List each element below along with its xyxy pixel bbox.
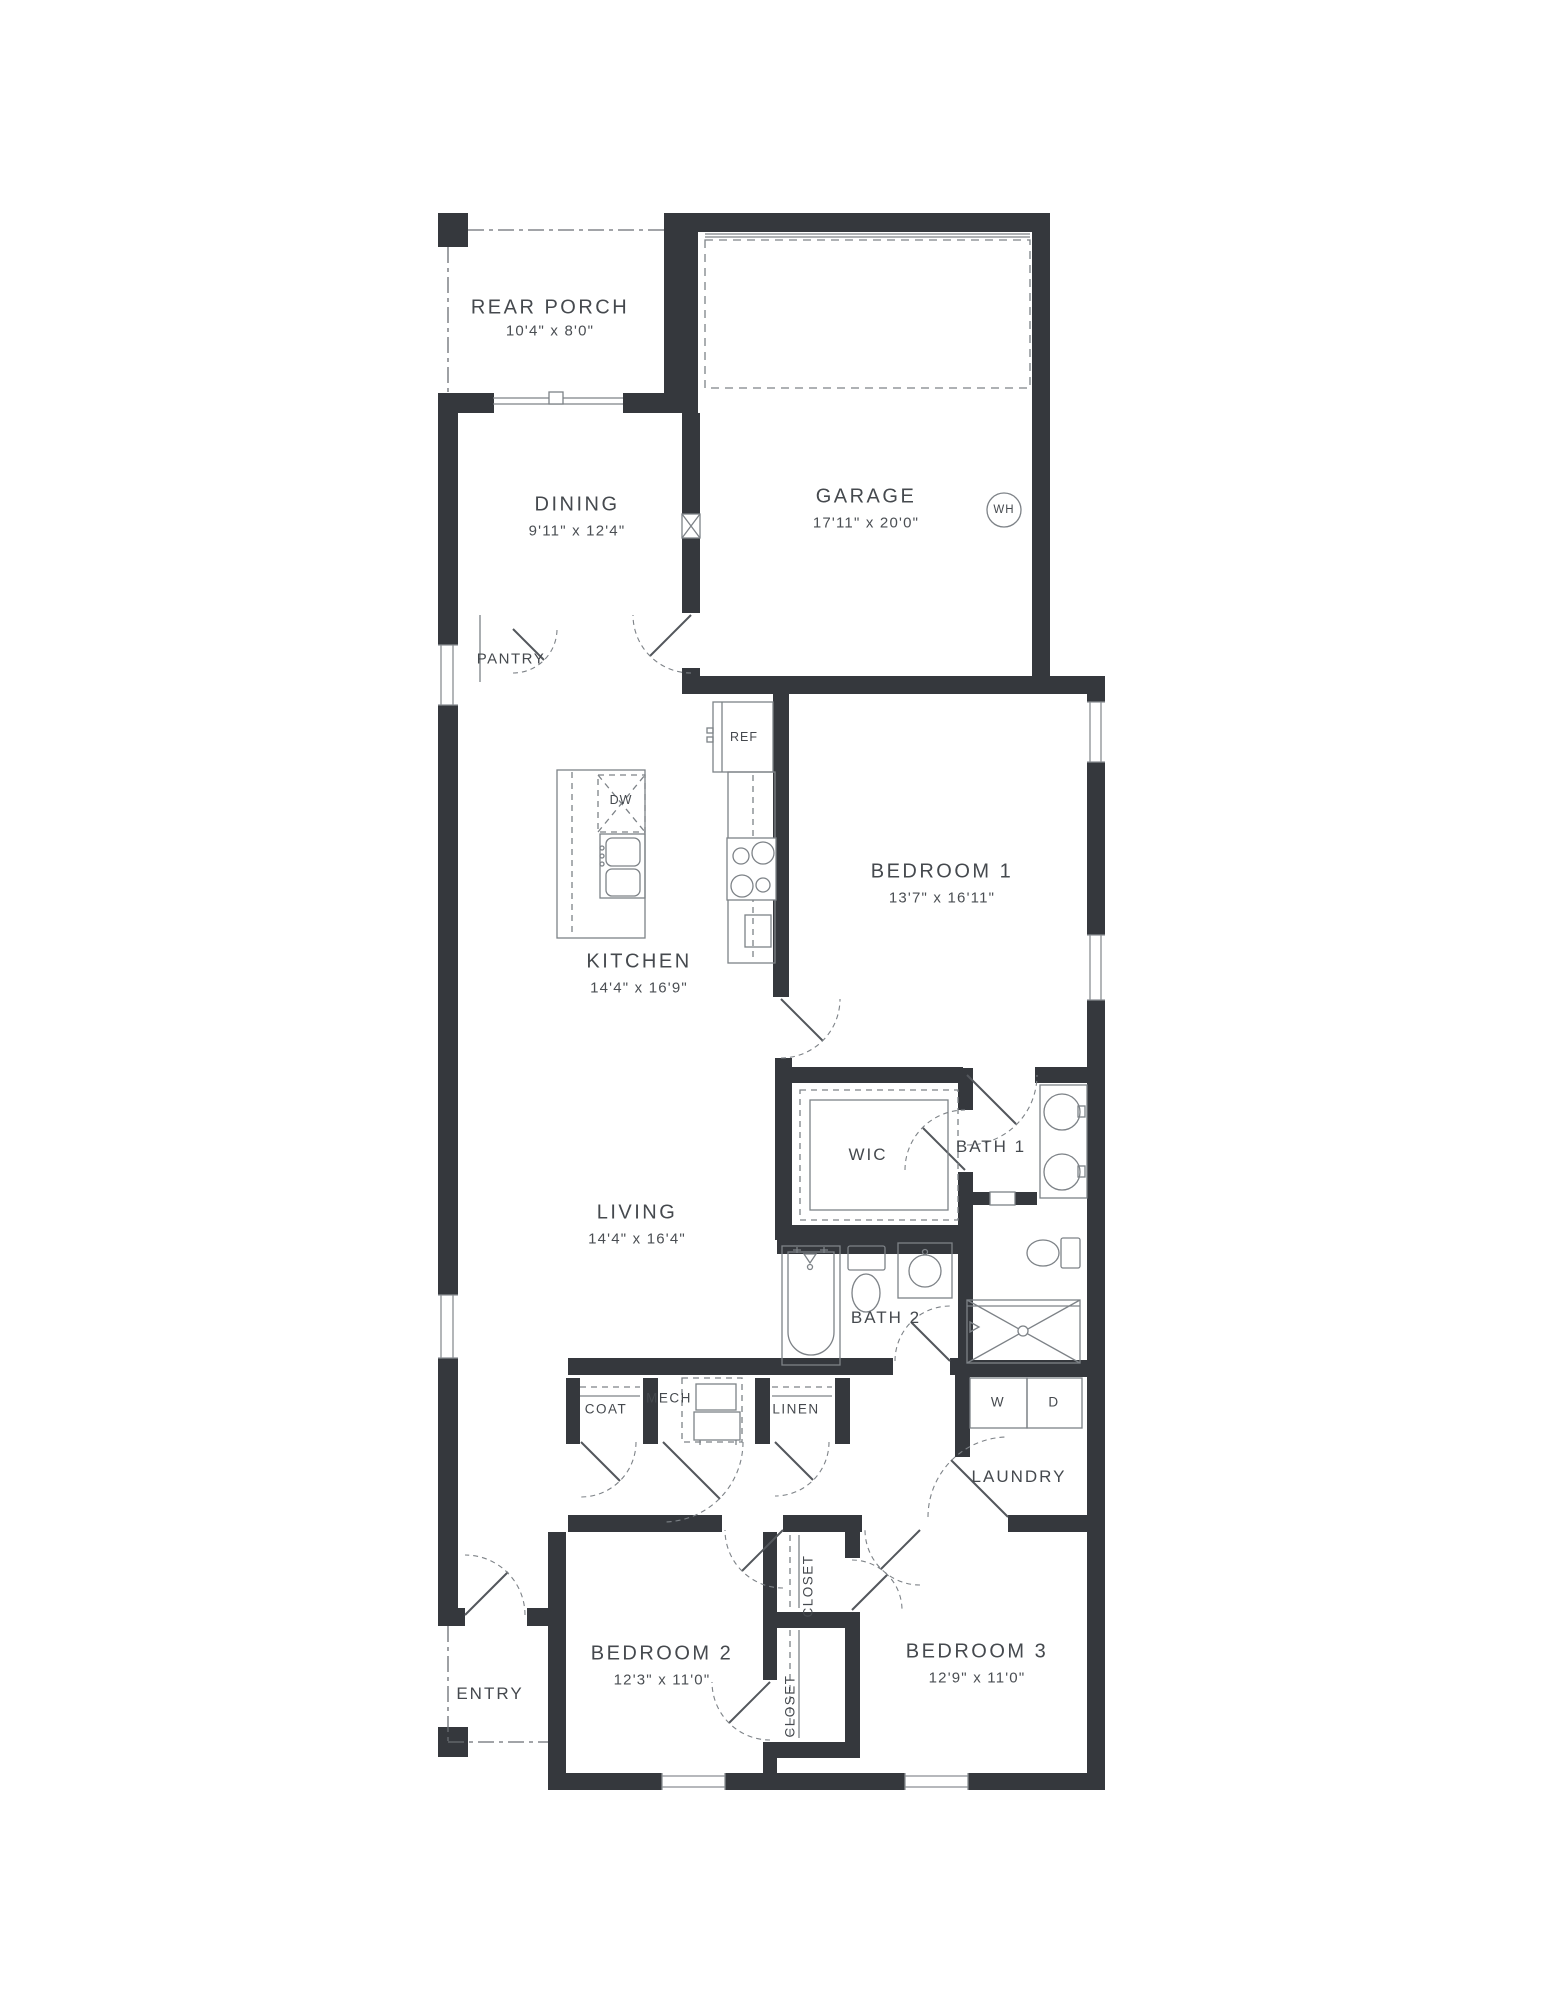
garage-wall-vent [682,514,700,538]
room-dims-bedroom2: 12'3" x 11'0" [614,1672,711,1689]
room-dims-garage: 17'11" x 20'0" [813,515,919,532]
room-dims-bedroom3: 12'9" x 11'0" [929,1670,1026,1687]
room-label-bedroom2: BEDROOM 2 [591,1643,734,1666]
room-dims-dining: 9'11" x 12'4" [529,523,626,540]
room-label-bedroom3: BEDROOM 3 [906,1641,1049,1664]
label-dryer: D [1048,1395,1059,1410]
room-dims-bedroom1: 13'7" x 16'11" [889,890,995,907]
label-refrigerator: REF [730,730,758,744]
bath1-threshold [990,1192,1015,1205]
cooktop-icon [727,838,776,900]
room-label-wic: WIC [848,1145,887,1165]
bath2-sink-icon [898,1243,952,1298]
washer-dryer-icons [970,1378,1082,1428]
room-label-pantry: PANTRY [477,651,545,668]
room-label-linen: LINEN [772,1402,819,1417]
island-sink-icon [600,834,645,898]
room-label-coat: COAT [585,1402,628,1417]
room-label-laundry: LAUNDRY [972,1467,1067,1487]
window [438,645,1105,1790]
room-label-garage: GARAGE [816,486,917,509]
oven-icon [745,915,771,947]
bed3-closet-shelf [790,1535,799,1608]
label-water-heater: WH [993,504,1014,516]
sliding-door [493,392,623,404]
fixtures-and-doors-layer [0,0,1545,2000]
room-dims-living: 14'4" x 16'4" [588,1231,686,1248]
label-dishwasher: DW [610,793,633,807]
floor-plan: REAR PORCH 10'4" x 8'0" GARAGE 17'11" x … [0,0,1545,2000]
bath2-toilet-icon [848,1246,885,1312]
room-label-closet-bed2: CLOSET [783,1674,798,1737]
room-label-mech: MECH [646,1391,692,1406]
door-arcs [465,615,1037,1740]
doors [465,615,1016,1723]
bath1-toilet-icon [1027,1238,1080,1268]
linen-closet-shelf [772,1387,832,1396]
label-washer: W [991,1395,1005,1410]
room-label-dining: DINING [535,494,620,517]
room-label-bedroom1: BEDROOM 1 [871,861,1014,884]
room-label-entry: ENTRY [456,1684,523,1704]
garage-door [705,234,1030,388]
room-dims-kitchen: 14'4" x 16'9" [590,980,688,997]
coat-closet-shelf [580,1387,640,1396]
mech-equipment-icon [682,1378,742,1445]
bath2-tub-icon [782,1246,840,1365]
room-label-bath1: BATH 1 [956,1137,1026,1157]
room-label-living: LIVING [597,1202,678,1225]
bath1-shower-icon [967,1300,1080,1363]
bath1-vanity [1040,1085,1087,1198]
room-label-bath2: BATH 2 [851,1308,921,1328]
room-label-closet-bed3: CLOSET [801,1554,816,1617]
room-label-kitchen: KITCHEN [586,951,691,974]
room-label-rear-porch: REAR PORCH [471,297,629,320]
room-dims-rear-porch: 10'4" x 8'0" [506,323,594,340]
